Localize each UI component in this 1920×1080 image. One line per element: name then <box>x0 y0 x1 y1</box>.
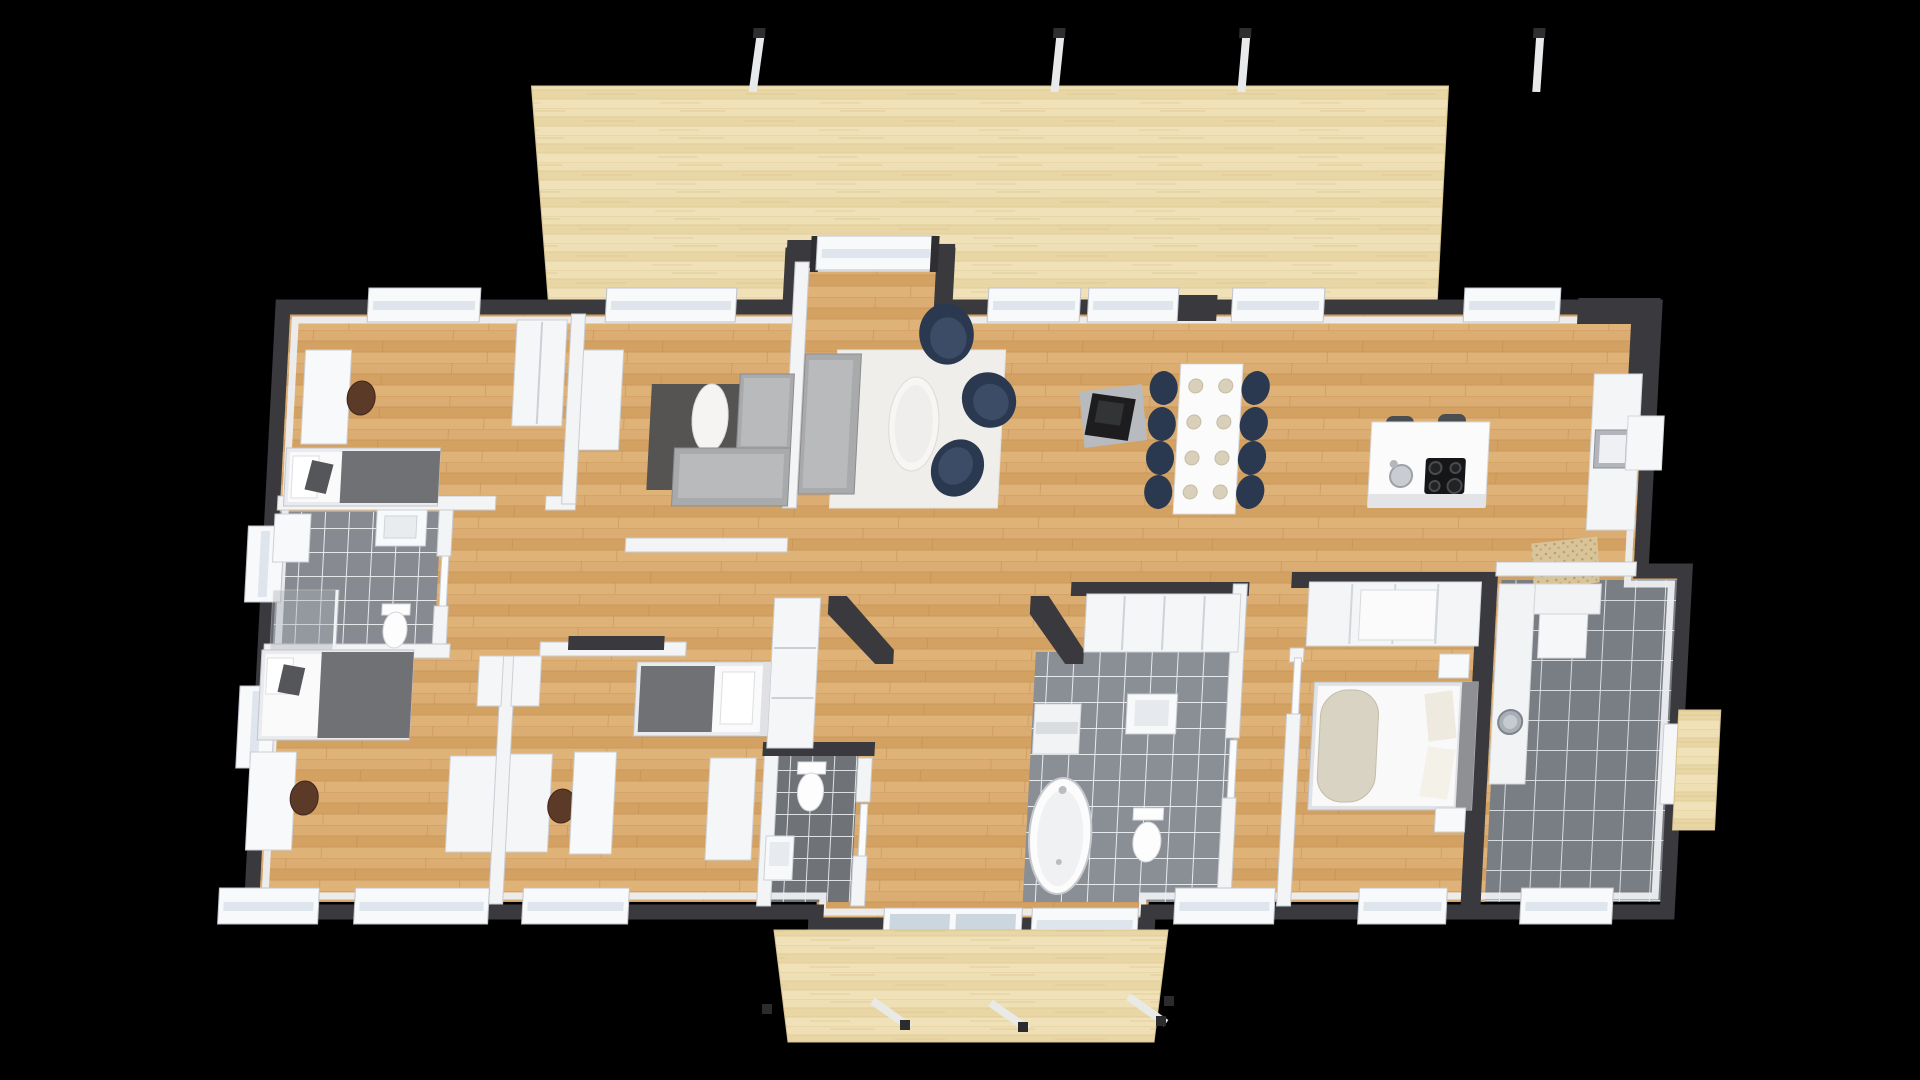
wall-bathroom1-east-a <box>437 510 453 556</box>
floorplan-canvas[interactable] <box>0 0 1920 1080</box>
place-setting <box>1215 451 1230 465</box>
deck-post-cap <box>1533 28 1546 38</box>
window-glass <box>1036 920 1132 929</box>
deck-post-cap <box>1018 1022 1028 1032</box>
bedroom2-dresser <box>445 756 496 852</box>
hall-wardrobe <box>511 656 542 706</box>
bedroom3-wardrobe <box>705 758 756 860</box>
deck-post-cap <box>1164 996 1174 1006</box>
deck-post-cap <box>1239 28 1252 38</box>
kitchen-tall-cabinet <box>1625 416 1664 470</box>
master-nightstand <box>1438 654 1469 678</box>
place-setting <box>1213 485 1228 499</box>
place-setting <box>1183 485 1198 499</box>
bathroom1-vanity-basin <box>384 516 417 538</box>
wall-wc-east-a <box>856 758 872 802</box>
window-glass <box>1093 301 1173 310</box>
bathroom1-shower-glass <box>270 590 339 650</box>
utility-cabinet <box>1534 584 1602 614</box>
north-deck <box>520 86 1448 300</box>
bedroom1-bed-blanket <box>340 451 441 503</box>
window-glass <box>1525 902 1607 911</box>
master-nightstand <box>1434 808 1465 832</box>
fireplace-stove-top <box>1094 400 1124 425</box>
den-sofa-cushion <box>741 378 791 446</box>
master-blanket-roll <box>1316 690 1380 802</box>
wall-wc-east-b <box>851 856 868 906</box>
window-glass <box>1469 301 1555 310</box>
wall-cap-bedroom3 <box>568 636 665 650</box>
living-sofa-cushion <box>802 360 853 488</box>
master-pillow <box>1424 690 1456 741</box>
place-setting <box>1218 379 1233 393</box>
master-dresser <box>1358 590 1437 640</box>
bedroom3-bed-pillow <box>720 672 755 724</box>
window-glass <box>611 301 731 310</box>
deck-post-cap <box>1053 28 1066 38</box>
bedroom2-bed-blanket <box>317 652 414 738</box>
bathroom2-toilet-tank <box>1133 808 1164 820</box>
window-glass <box>1179 902 1269 911</box>
deck-post-cap <box>900 1020 910 1030</box>
burner <box>1450 463 1461 473</box>
window-glass <box>993 301 1075 310</box>
burner <box>1429 462 1442 474</box>
bedroom3-dresser <box>505 754 552 852</box>
bedroom3-desk <box>569 752 616 854</box>
bathroom2-towel <box>1036 722 1079 734</box>
den-sofa-cushion <box>678 454 784 498</box>
wc-toilet-tank <box>797 762 826 774</box>
window-glass <box>359 902 483 911</box>
window-glass <box>821 249 929 258</box>
place-setting <box>1187 415 1202 429</box>
bedroom3-bed-blanket <box>638 666 715 732</box>
burner <box>1447 479 1462 493</box>
south-deck <box>774 930 1168 1042</box>
wall-utility-north <box>1496 562 1637 576</box>
window-glass <box>223 902 313 911</box>
kitchen-island-front <box>1367 494 1486 508</box>
burner <box>1429 481 1440 491</box>
hall-closet <box>767 598 821 748</box>
floorplan-viewport[interactable] <box>0 0 1920 1080</box>
exterior-wood-step <box>1673 710 1721 830</box>
south-deck-group <box>762 930 1174 1042</box>
bedroom2-desk <box>245 752 296 850</box>
window-glass <box>1237 301 1319 310</box>
wall-den-south <box>625 538 788 552</box>
window-glass <box>1363 902 1441 911</box>
place-setting <box>1185 451 1200 465</box>
bathroom1-shelf <box>273 514 312 562</box>
kitchen-sink-basin <box>1599 435 1626 463</box>
utility-cabinet <box>1538 614 1588 658</box>
place-setting <box>1188 379 1203 393</box>
den-sideboard <box>578 350 623 450</box>
place-setting <box>1217 415 1232 429</box>
bathroom2-sink-basin <box>1134 700 1169 726</box>
deck-post-cap <box>1156 1016 1166 1026</box>
island-sink <box>1389 465 1412 487</box>
deck-post-cap <box>753 28 766 38</box>
layer-south-deck <box>762 930 1174 1042</box>
bedroom1-desk <box>301 350 352 444</box>
window-glass <box>527 902 623 911</box>
wc-sink-basin <box>769 842 790 866</box>
deck-post-cap <box>762 1004 772 1014</box>
hall-wardrobe <box>477 656 504 706</box>
window-glass <box>373 301 475 310</box>
